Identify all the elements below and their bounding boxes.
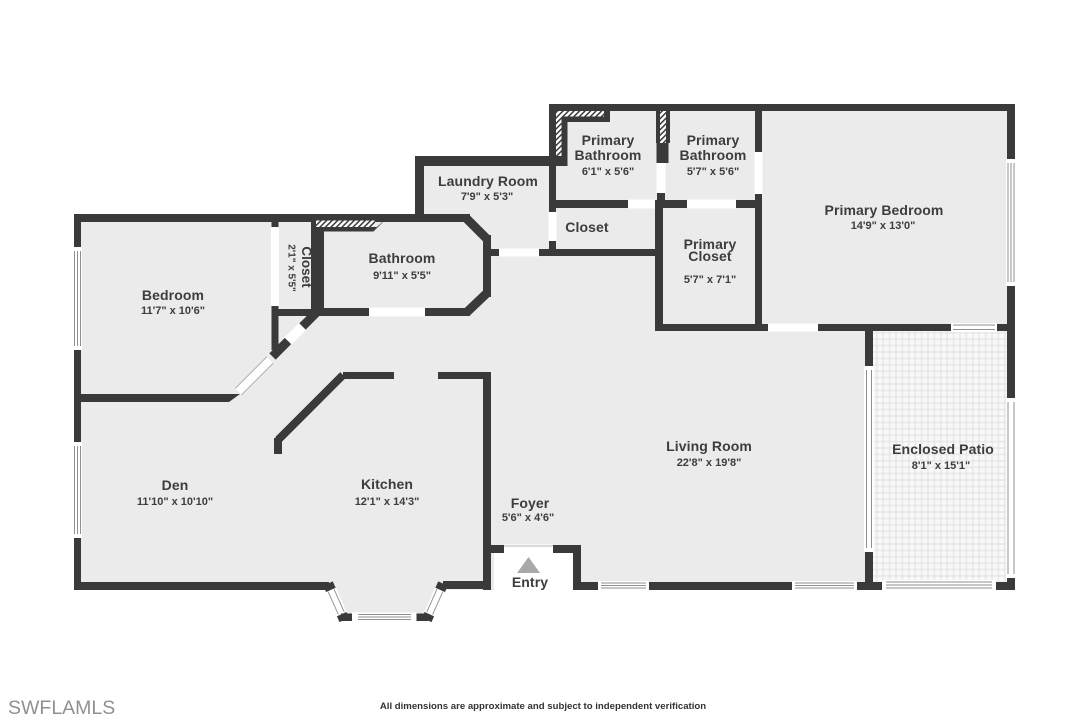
svg-text:Primary: Primary [687, 132, 740, 148]
svg-text:Kitchen: Kitchen [361, 476, 413, 492]
svg-text:14'9" x 13'0": 14'9" x 13'0" [851, 220, 916, 232]
svg-text:Bathroom: Bathroom [575, 147, 642, 163]
svg-text:5'6" x 4'6": 5'6" x 4'6" [502, 512, 554, 524]
svg-text:11'7" x 10'6": 11'7" x 10'6" [141, 305, 205, 317]
svg-text:11'10" x 10'10": 11'10" x 10'10" [137, 496, 213, 508]
svg-text:Closet: Closet [688, 248, 732, 264]
svg-text:5'7" x 5'6": 5'7" x 5'6" [687, 166, 739, 178]
svg-text:Laundry Room: Laundry Room [438, 173, 538, 189]
svg-text:8'1" x 15'1": 8'1" x 15'1" [912, 460, 970, 472]
svg-text:Foyer: Foyer [511, 495, 550, 511]
svg-text:Closet: Closet [299, 246, 314, 288]
svg-text:6'1" x 5'6": 6'1" x 5'6" [582, 166, 634, 178]
svg-text:SWFLAMLS: SWFLAMLS [8, 697, 115, 719]
svg-text:Closet: Closet [565, 219, 609, 235]
svg-text:Primary Bedroom: Primary Bedroom [825, 202, 944, 218]
svg-text:9'11" x 5'5": 9'11" x 5'5" [373, 270, 431, 282]
svg-text:7'9" x 5'3": 7'9" x 5'3" [461, 191, 513, 203]
svg-text:12'1" x 14'3": 12'1" x 14'3" [355, 496, 420, 508]
svg-text:Bathroom: Bathroom [369, 250, 436, 266]
svg-text:Living Room: Living Room [666, 438, 752, 454]
svg-text:Den: Den [162, 477, 189, 493]
svg-text:5'7" x 7'1": 5'7" x 7'1" [684, 274, 736, 286]
svg-text:Bathroom: Bathroom [680, 147, 747, 163]
svg-text:Entry: Entry [512, 574, 548, 590]
svg-text:Bedroom: Bedroom [142, 287, 204, 303]
svg-text:All dimensions are approximate: All dimensions are approximate and subje… [380, 701, 706, 712]
svg-text:Enclosed Patio: Enclosed Patio [892, 441, 994, 457]
svg-text:22'8" x 19'8": 22'8" x 19'8" [677, 457, 742, 469]
svg-text:Primary: Primary [582, 132, 635, 148]
svg-text:2'1" x 5'5": 2'1" x 5'5" [286, 244, 297, 292]
